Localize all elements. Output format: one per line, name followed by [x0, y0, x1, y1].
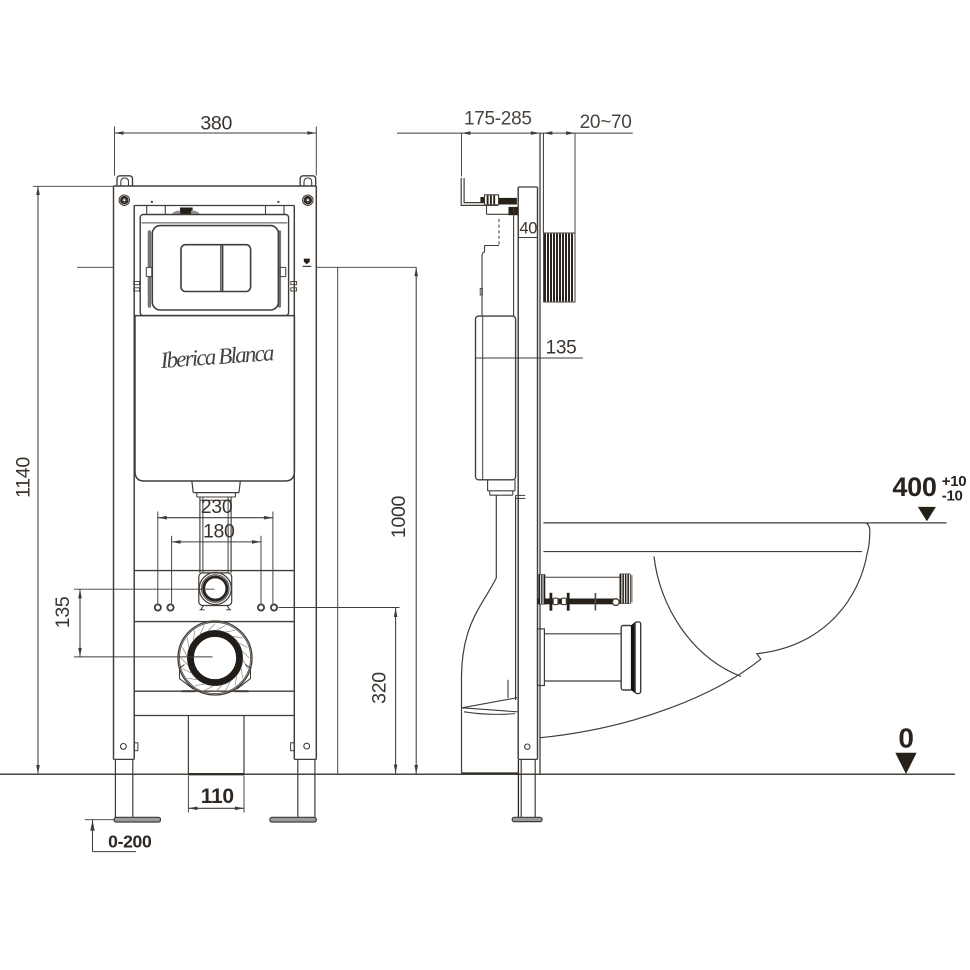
svg-text:20~70: 20~70	[580, 112, 632, 133]
svg-text:400: 400	[892, 472, 936, 502]
svg-text:180: 180	[203, 520, 235, 542]
svg-text:1140: 1140	[13, 457, 35, 498]
svg-text:110: 110	[201, 785, 234, 808]
svg-text:1000: 1000	[388, 495, 410, 538]
svg-text:175-285: 175-285	[464, 109, 532, 130]
svg-text:0-200: 0-200	[108, 831, 152, 851]
svg-text:-10: -10	[942, 488, 963, 505]
svg-text:135: 135	[52, 596, 74, 628]
svg-text:0: 0	[898, 723, 913, 754]
svg-text:40: 40	[519, 219, 537, 237]
svg-text:380: 380	[200, 112, 232, 134]
svg-text:135: 135	[546, 337, 577, 358]
svg-text:320: 320	[369, 672, 391, 704]
svg-text:230: 230	[201, 496, 233, 518]
